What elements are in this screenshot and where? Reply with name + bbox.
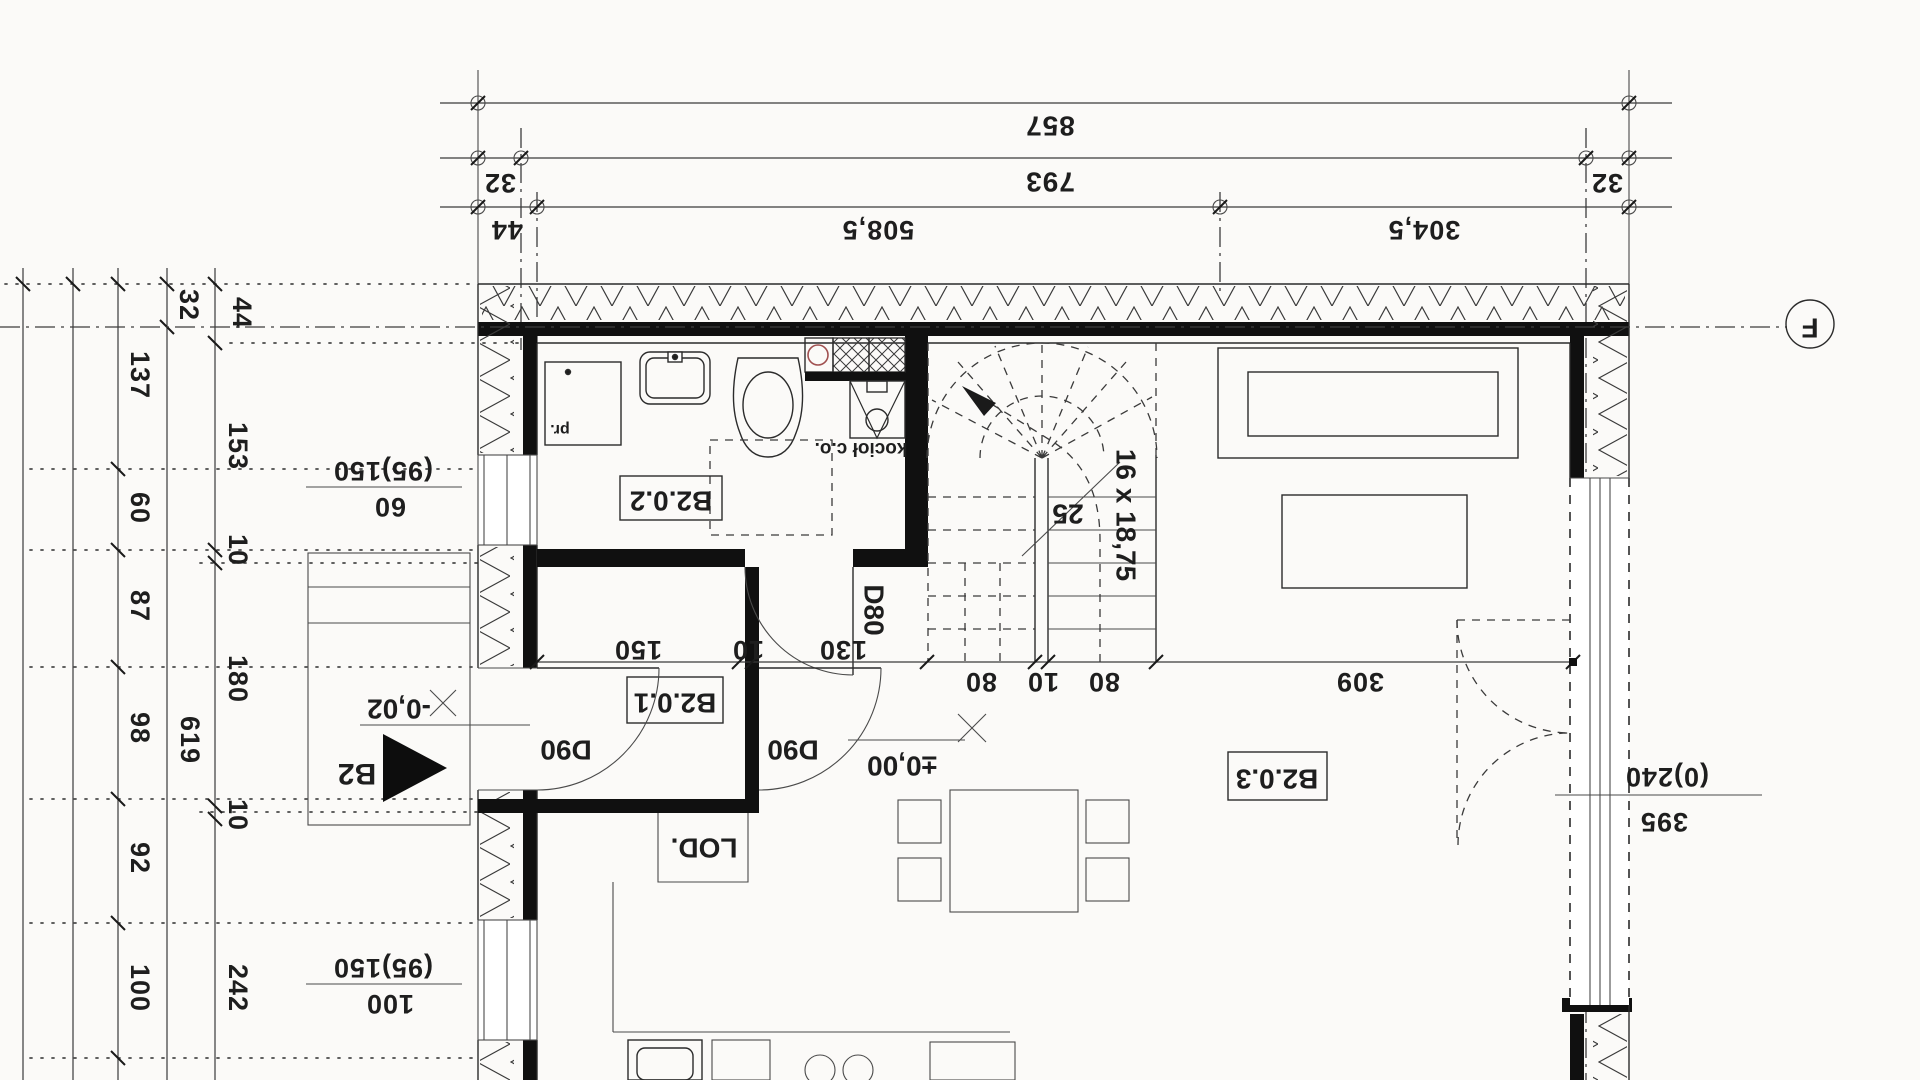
ldim-44: 44 [227, 297, 257, 329]
window-spec-left-upper: (95)150 60 [306, 456, 462, 522]
room-label-living: B2.0.3 [1228, 752, 1327, 800]
ldim-153: 153 [223, 422, 253, 470]
duct-shaft [805, 338, 905, 381]
svg-text:(95)150: (95)150 [333, 456, 433, 486]
dim-seg2: 304,5 [1388, 215, 1461, 245]
upper-flight-treads [928, 497, 1035, 662]
leader-dots [5, 284, 537, 1058]
window-spec-left-lower: (95)150 100 [306, 953, 462, 1019]
kitchen-appliance [930, 1042, 1015, 1080]
svg-text:(95)150: (95)150 [333, 953, 433, 983]
svg-text:-0,02: -0,02 [367, 694, 431, 725]
kitchen-sink [628, 1040, 702, 1080]
entry-level-marker: -0,02 [360, 690, 530, 725]
kitchen: LOD. [613, 813, 1015, 1080]
toilet [733, 358, 802, 457]
chair [1086, 800, 1129, 843]
ldim-10a: 10 [223, 534, 253, 566]
dining-set [898, 790, 1129, 912]
idim-10a: 10 [732, 635, 764, 665]
top-dimension-lines: 857 793 32 32 44 508,5 304,5 [440, 70, 1672, 1080]
svg-text:100: 100 [366, 989, 414, 1019]
section-arrow [383, 734, 447, 802]
chair [898, 800, 941, 843]
coffee-table [1282, 495, 1467, 588]
shower-dashed [710, 440, 832, 535]
section-marker-b2: B2 [338, 734, 447, 802]
room-label-bathroom: B2.0.2 [620, 476, 722, 520]
dim-seg1: 508,5 [842, 215, 915, 245]
window-left-upper [478, 455, 537, 545]
ldim-242: 242 [223, 964, 253, 1012]
dim-offset-right: 32 [1591, 168, 1623, 198]
boiler-label: kocioł c.o. [815, 438, 908, 459]
winder-fan [927, 343, 1157, 458]
dim-wall-44: 44 [491, 215, 523, 245]
ldim-137: 137 [125, 351, 155, 399]
dim-axis-span: 793 [1025, 167, 1075, 198]
hob [805, 1055, 873, 1080]
kitchen-cabinet [712, 1040, 770, 1080]
ldim-10b: 10 [223, 799, 253, 831]
dimension-ticks-left [16, 277, 222, 1065]
dim-offset-left: 32 [484, 168, 516, 198]
svg-text:B2.0.1: B2.0.1 [634, 688, 717, 719]
hall: B2.0.1 D90 D90 [537, 668, 881, 790]
svg-text:LOD.: LOD. [671, 833, 738, 864]
svg-text:B2.0.3: B2.0.3 [1236, 764, 1319, 795]
stairs: 25 16 x 18,75 [927, 343, 1157, 662]
room-label-hall: B2.0.1 [627, 677, 723, 723]
svg-text:D90: D90 [540, 735, 591, 766]
ldim-87: 87 [125, 590, 155, 622]
ldim-100: 100 [125, 964, 155, 1012]
idim-309: 309 [1336, 667, 1384, 697]
svg-text:B2.0.2: B2.0.2 [630, 486, 713, 517]
floor-plan-canvas: 857 793 32 32 44 508,5 304,5 [0, 0, 1920, 1080]
floor-level-marker: ±0,00 [848, 714, 986, 782]
washer-label: pr. [550, 421, 570, 438]
interior-dimension-chain: 150 10 130 80 10 80 309 [530, 635, 1580, 697]
svg-text:D90: D90 [767, 735, 818, 766]
ldim-619: 619 [175, 716, 205, 764]
axis-F-label: F [1801, 313, 1818, 344]
bathroom: pr. kocioł c.o. B2.0.2 D80 [545, 352, 907, 675]
window-right-glazing [1570, 478, 1629, 1005]
window-left-lower [478, 920, 537, 1040]
sink [640, 352, 710, 404]
sofa [1218, 348, 1518, 458]
stair-count: 25 [1052, 499, 1083, 530]
ldim-60: 60 [125, 492, 155, 524]
idim-150: 150 [614, 635, 662, 665]
svg-text:60: 60 [374, 492, 406, 522]
idim-10b: 10 [1027, 667, 1059, 697]
ldim-92: 92 [125, 842, 155, 874]
floor-plan-drawing: 857 793 32 32 44 508,5 304,5 [0, 0, 1920, 1080]
svg-text:(0)240: (0)240 [1625, 762, 1709, 792]
chair [898, 858, 941, 901]
svg-text:395: 395 [1640, 807, 1688, 837]
fridge-niche: LOD. [658, 813, 748, 882]
boiler [850, 381, 905, 438]
entrance-opening [478, 668, 537, 790]
svg-text:D80: D80 [859, 584, 890, 635]
idim-130: 130 [819, 635, 867, 665]
left-dimension-chains: 32 44 137 153 60 10 87 180 98 619 10 92 … [5, 268, 537, 1080]
idim-80b: 80 [1088, 667, 1120, 697]
svg-text:B2: B2 [338, 757, 376, 790]
dim-overall: 857 [1025, 111, 1075, 142]
ldim-98: 98 [125, 712, 155, 744]
ldim-32: 32 [174, 289, 204, 321]
terrace-door-dashed [1457, 620, 1570, 845]
dining-table [950, 790, 1078, 912]
door-d90-right: D90 [759, 668, 881, 790]
chair [1086, 858, 1129, 901]
idim-80a: 80 [965, 667, 997, 697]
svg-text:±0,00: ±0,00 [867, 751, 937, 782]
door-d90-left: D90 [537, 668, 659, 790]
ldim-180: 180 [223, 655, 253, 703]
living-room: B2.0.3 ±0,00 [848, 348, 1570, 912]
stair-formula: 16 x 18,75 [1111, 449, 1142, 581]
